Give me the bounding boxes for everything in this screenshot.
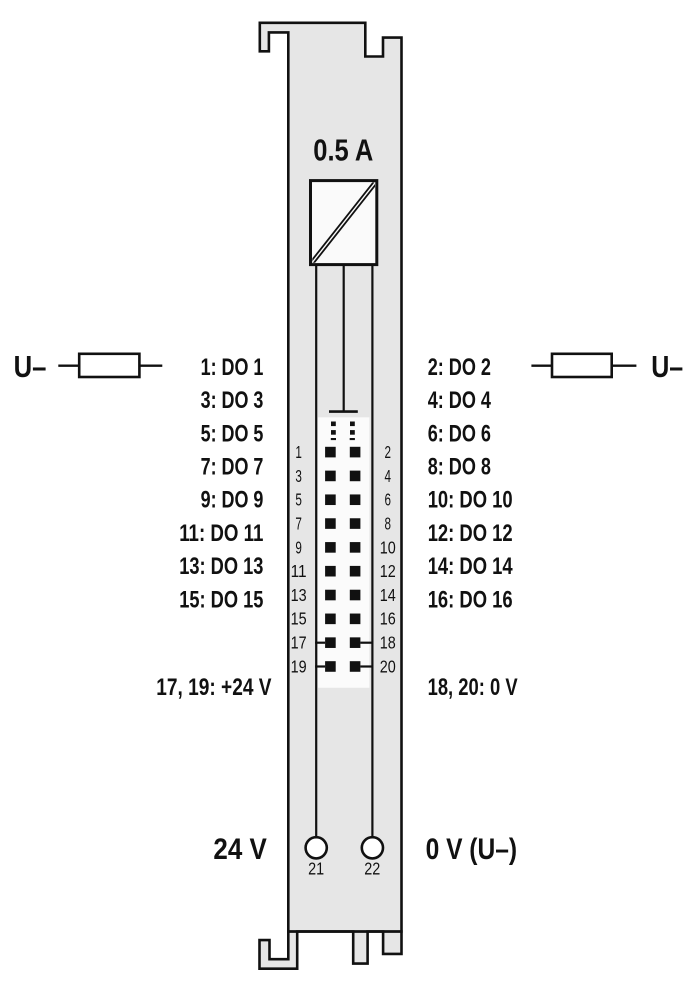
svg-text:20: 20 xyxy=(380,656,396,676)
svg-text:2: DO 2: 2: DO 2 xyxy=(428,354,491,381)
svg-text:18, 20: 0 V: 18, 20: 0 V xyxy=(428,674,518,701)
svg-text:18: 18 xyxy=(380,633,396,653)
svg-text:12: DO 12: 12: DO 12 xyxy=(428,520,513,547)
svg-text:21: 21 xyxy=(308,859,324,879)
svg-text:4: DO 4: 4: DO 4 xyxy=(428,387,492,414)
svg-text:6: DO 6: 6: DO 6 xyxy=(428,420,491,447)
svg-text:22: 22 xyxy=(364,859,380,879)
svg-text:0.5 A: 0.5 A xyxy=(313,134,373,167)
svg-text:16: 16 xyxy=(380,609,396,629)
svg-text:12: 12 xyxy=(380,561,396,581)
svg-text:11: DO 11: 11: DO 11 xyxy=(179,520,263,547)
svg-text:7: DO 7: 7: DO 7 xyxy=(201,454,264,481)
svg-text:9: 9 xyxy=(295,537,302,557)
svg-text:10: DO 10: 10: DO 10 xyxy=(428,487,513,514)
svg-text:3: 3 xyxy=(295,466,302,486)
svg-text:9: DO 9: 9: DO 9 xyxy=(201,487,264,514)
svg-text:4: 4 xyxy=(384,466,391,486)
svg-text:8: 8 xyxy=(384,514,391,534)
svg-text:15: DO 15: 15: DO 15 xyxy=(179,586,263,613)
svg-text:0 V (U–): 0 V (U–) xyxy=(426,833,517,866)
svg-text:24 V: 24 V xyxy=(213,833,266,866)
svg-text:1: DO 1: 1: DO 1 xyxy=(201,354,264,381)
svg-text:17, 19: +24 V: 17, 19: +24 V xyxy=(156,674,271,701)
svg-text:U–: U– xyxy=(14,349,47,384)
svg-text:5: DO 5: 5: DO 5 xyxy=(201,420,264,447)
svg-text:1: 1 xyxy=(295,442,302,462)
svg-text:3: DO 3: 3: DO 3 xyxy=(201,387,264,414)
svg-text:U–: U– xyxy=(651,349,683,384)
svg-text:7: 7 xyxy=(295,514,302,534)
svg-text:6: 6 xyxy=(384,490,391,510)
svg-text:13: DO 13: 13: DO 13 xyxy=(179,553,263,580)
svg-text:19: 19 xyxy=(291,656,307,676)
svg-text:10: 10 xyxy=(380,537,396,557)
svg-text:2: 2 xyxy=(384,442,391,462)
svg-text:14: DO 14: 14: DO 14 xyxy=(428,553,514,580)
svg-text:16: DO 16: 16: DO 16 xyxy=(428,586,513,613)
svg-text:8: DO 8: 8: DO 8 xyxy=(428,454,491,481)
svg-text:13: 13 xyxy=(291,585,307,605)
svg-text:14: 14 xyxy=(380,585,396,605)
svg-text:11: 11 xyxy=(291,561,307,581)
svg-text:17: 17 xyxy=(291,633,307,653)
svg-text:15: 15 xyxy=(291,609,307,629)
svg-text:5: 5 xyxy=(295,490,302,510)
